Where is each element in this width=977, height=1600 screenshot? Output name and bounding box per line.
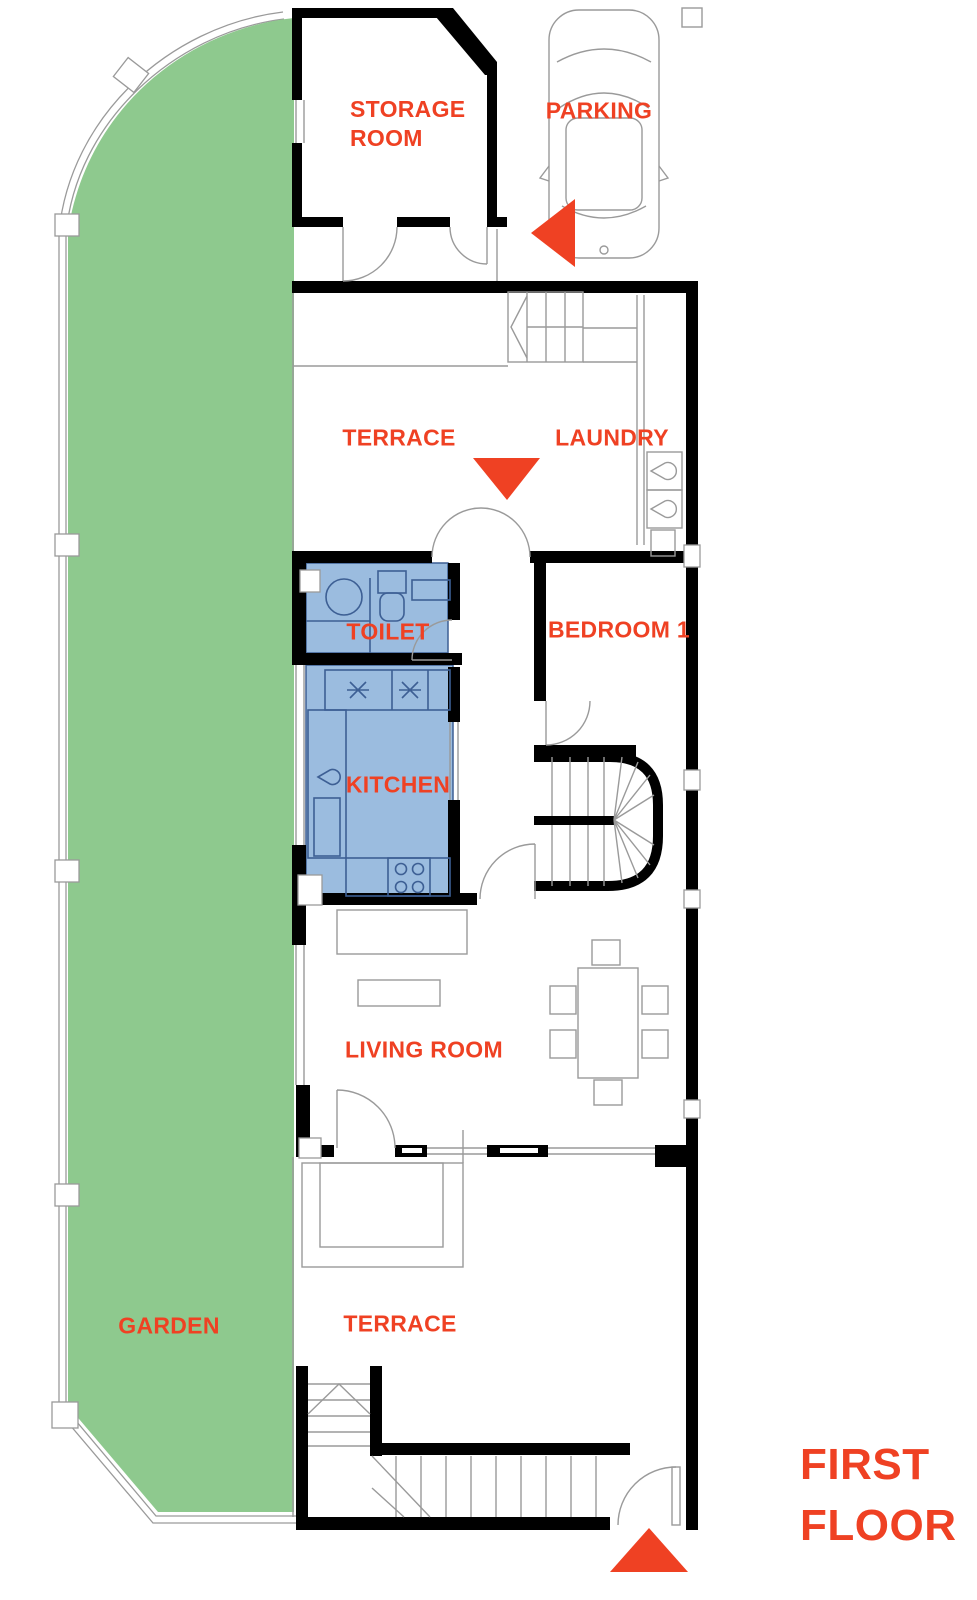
terrace-arrow-icon	[473, 458, 540, 500]
garden-area	[68, 18, 294, 1512]
room-label-bedroom: BEDROOM 1	[548, 616, 690, 645]
plan-title: FIRST FLOOR	[800, 1434, 956, 1556]
planters	[302, 1163, 463, 1267]
room-label-garden: GARDEN	[118, 1312, 219, 1341]
parking-arrow-icon	[531, 199, 575, 267]
room-label-parking: PARKING	[546, 97, 652, 126]
room-label-kitchen: KITCHEN	[346, 771, 450, 800]
room-label-living: LIVING ROOM	[345, 1036, 503, 1065]
stairs-top	[508, 292, 583, 362]
utility-box	[682, 8, 702, 27]
room-label-terrace-upper: TERRACE	[342, 424, 455, 453]
floor-plan: STORAGE ROOM PARKING TERRACE LAUNDRY TOI…	[0, 0, 977, 1600]
room-label-storage: STORAGE ROOM	[350, 95, 465, 153]
floor-plan-drawing	[0, 0, 977, 1600]
laundry-fixtures	[647, 452, 682, 556]
entrance-arrow-icon	[610, 1528, 688, 1572]
dining-set	[550, 940, 668, 1105]
room-label-laundry: LAUNDRY	[555, 424, 669, 453]
sofa	[337, 910, 467, 1006]
room-label-terrace-lower: TERRACE	[343, 1310, 456, 1339]
room-label-toilet: TOILET	[346, 618, 429, 647]
